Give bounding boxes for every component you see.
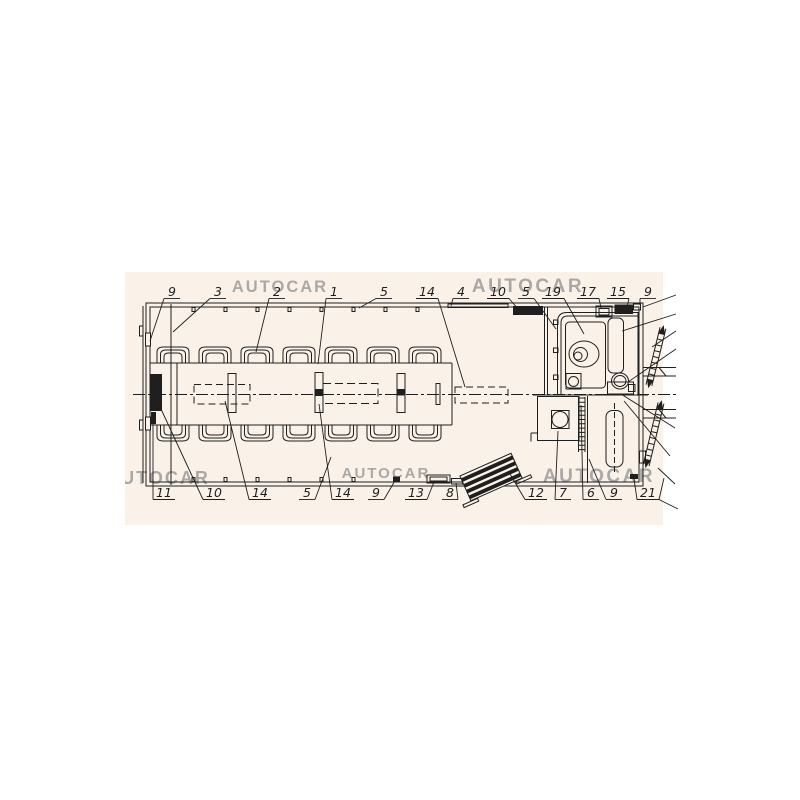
callout-number: 7 [559,485,567,500]
callout-number: 15 [610,284,626,299]
callout-number: 14 [252,485,268,500]
callout-number: 12 [528,485,544,500]
callout-number: 14 [419,284,435,299]
overhead-locker [513,306,543,315]
callout-number: 8 [446,485,454,500]
callout-number: 19 [545,284,561,299]
callout-number: 9 [644,284,652,299]
callout-number: 1 [330,284,338,299]
callout-number: 17 [580,284,596,299]
callout-number: 13 [408,485,424,500]
callout-number: 3 [214,284,222,299]
screenshot-canvas: AUTOCARAUTOCARAUTOCARAUTOCARAUTOCAR [0,0,800,800]
callout-number: 9 [610,485,618,500]
callout-number: 4 [457,284,465,299]
callout-number: 9 [168,284,176,299]
door-latch [630,474,638,479]
callout-number: 5 [380,284,388,299]
callout-number: 10 [206,485,222,500]
callout-number: 21 [640,485,656,500]
callout-number: 10 [490,284,506,299]
callout-number: 14 [335,485,351,500]
layout-drawing: AUTOCARAUTOCARAUTOCARAUTOCARAUTOCAR [0,0,800,800]
left-wall-latch [146,417,151,430]
left-wall-latch [146,333,151,346]
step-latch [393,477,400,483]
callout-number: 11 [156,485,172,500]
callout-number: 5 [303,485,311,500]
callout-number: 9 [372,485,380,500]
callout-number: 2 [273,284,281,299]
callout-number: 5 [522,284,530,299]
callout-number: 6 [587,485,595,500]
